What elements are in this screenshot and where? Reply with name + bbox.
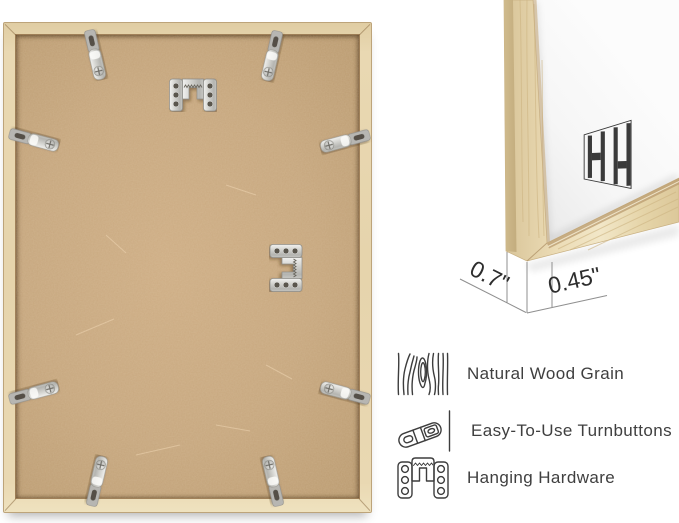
dimension-depth-label: 0.7"	[466, 255, 514, 296]
hanging-hardware-icon	[396, 455, 450, 501]
sawtooth-hanger-top	[169, 78, 217, 112]
frame-back-photo[interactable]	[3, 22, 372, 513]
sawtooth-hanger-middle	[269, 244, 303, 292]
feature-label: Hanging Hardware	[467, 468, 615, 488]
feature-turnbuttons: Easy-To-Use Turnbuttons	[396, 408, 672, 454]
feature-hanging-hardware: Hanging Hardware	[396, 455, 615, 501]
turnbutton-icon	[396, 408, 454, 454]
frame-corner-photo[interactable]: 0.7" 0.45"	[430, 0, 679, 332]
feature-natural-wood-grain: Natural Wood Grain	[396, 351, 624, 397]
feature-label: Easy-To-Use Turnbuttons	[471, 421, 672, 441]
feature-label: Natural Wood Grain	[467, 364, 624, 384]
wood-grain-icon	[396, 351, 450, 397]
dimension-face-width-label: 0.45"	[546, 262, 603, 299]
